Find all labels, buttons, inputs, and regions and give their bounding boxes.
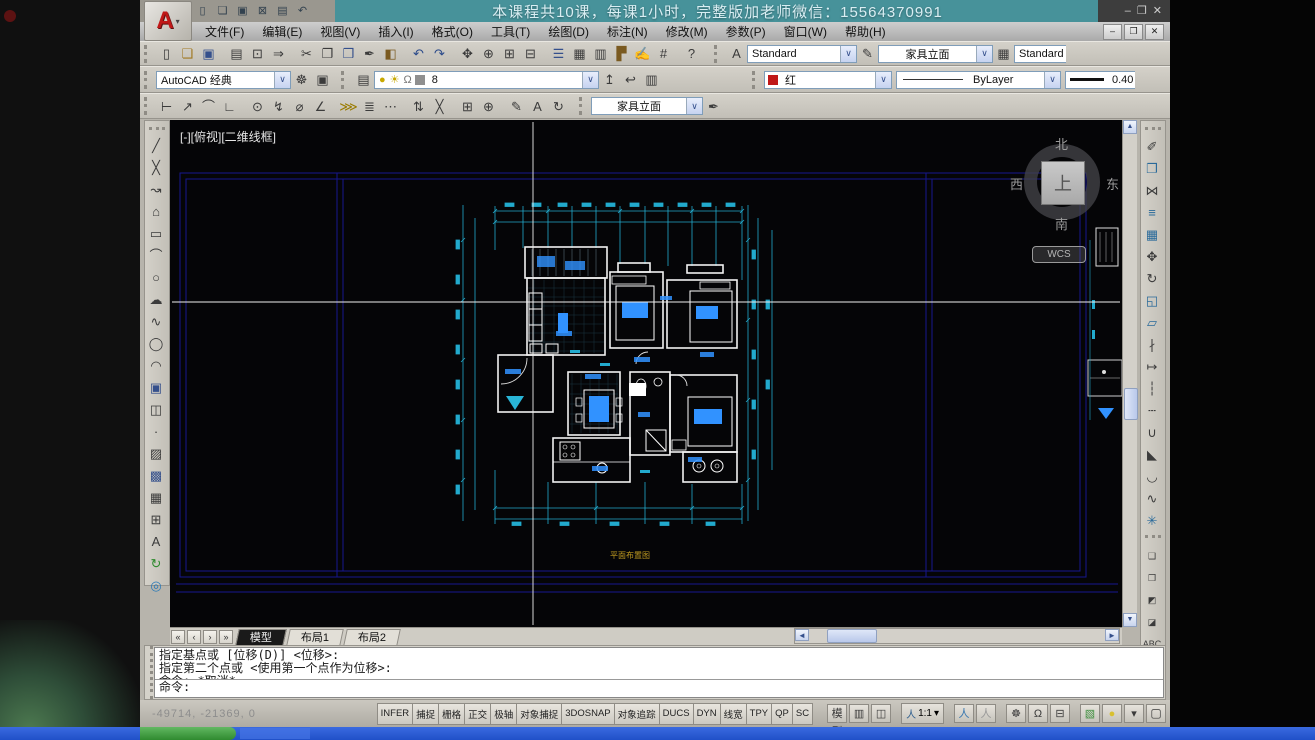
combo-arrow-icon: ∨ (274, 72, 290, 88)
annotation-scale-value: 1:1 (918, 708, 932, 719)
dim-center-mark-icon[interactable]: ⊕ (478, 96, 499, 117)
toggle-lineweight[interactable]: 线宽 (720, 703, 746, 725)
viewcube-east[interactable]: 东 (1106, 174, 1119, 193)
toolbar-grip[interactable] (579, 97, 587, 115)
dim-angular-icon[interactable]: ∠ (310, 96, 331, 117)
lineweight-sample (1070, 78, 1104, 81)
draw-toolbar: ╱╳↝⌂▭⌒○☁∿◯◠▣◫·▨▩▦⊞A↻◎ (144, 120, 170, 586)
annotation-person-icon: 人 (906, 706, 916, 721)
plot-preview-icon[interactable]: ⊡ (247, 43, 268, 64)
annotation-visibility-icon[interactable]: 人 (954, 704, 974, 723)
circle-icon[interactable]: ○ (145, 266, 167, 288)
menu-bar: 文件(F)编辑(E)视图(V)插入(I)格式(O)工具(T)绘图(D)标注(N)… (140, 22, 1170, 41)
workspace-settings-icon[interactable]: ☸ (291, 69, 312, 90)
toggle-osnap[interactable]: 对象捕捉 (516, 703, 561, 725)
model-space-button[interactable]: 模型 (827, 704, 847, 723)
vertical-scroll-thumb[interactable] (1124, 388, 1138, 420)
paste-icon[interactable]: ❒ (338, 43, 359, 64)
rotate-icon[interactable]: ↻ (1141, 267, 1163, 289)
trim-icon[interactable]: ∤ (1141, 333, 1163, 355)
break-icon[interactable]: ┄ (1141, 399, 1163, 421)
combo-arrow-icon: ∨ (875, 72, 891, 88)
layer-on-icon: ● (379, 74, 386, 86)
point-icon[interactable]: · (145, 420, 167, 442)
make-block-icon[interactable]: ◫ (145, 398, 167, 420)
stretch-icon[interactable]: ▱ (1141, 311, 1163, 333)
region-icon[interactable]: ▦ (145, 486, 167, 508)
combo-arrow-icon: ∨ (1044, 72, 1060, 88)
workspace-select[interactable]: AutoCAD 经典 ∨ (156, 71, 291, 89)
dim-style-current-select[interactable]: 家具立面 ∨ (591, 97, 703, 115)
layer-name: 8 (428, 74, 582, 86)
toolbar-grip[interactable] (149, 127, 165, 130)
annotation-scale-button[interactable]: 人 1:1 ▾ (901, 703, 944, 724)
mtext-icon[interactable]: A (145, 530, 167, 552)
command-history-line: 指定第二个点或 <使用第一个点作为位移>: (159, 662, 1159, 675)
command-input[interactable]: 命令: (155, 680, 1163, 697)
wcs-dropdown: WCS (1032, 246, 1086, 263)
quick-view-layouts-icon[interactable]: ▥ (849, 704, 869, 723)
scroll-right-icon[interactable]: ► (1105, 629, 1119, 641)
close-icon[interactable]: ✕ (1153, 5, 1162, 17)
extend-icon[interactable]: ↦ (1141, 355, 1163, 377)
gradient-icon[interactable]: ▩ (145, 464, 167, 486)
qat-saveas-icon[interactable]: ⊠ (254, 3, 271, 19)
toggle-otrack[interactable]: 对象追踪 (614, 703, 659, 725)
help-icon[interactable]: ? (681, 43, 702, 64)
qat-undo-icon[interactable]: ↶ (294, 3, 311, 19)
layer-properties-manager-icon[interactable]: ▤ (353, 69, 374, 90)
markup-sets-icon[interactable]: ✍ (632, 43, 653, 64)
quickcalc-icon[interactable]: # (653, 43, 674, 64)
document-window-controls: – ❐ ✕ (1103, 24, 1164, 40)
autocad-a-icon: A (156, 7, 173, 35)
scroll-down-icon[interactable]: ▼ (1123, 613, 1137, 627)
zoom-previous-icon[interactable]: ⊟ (520, 43, 541, 64)
qat-plot-icon[interactable]: ▤ (274, 3, 291, 19)
screen: A ▾ ▯❏▣⊠▤↶ 本课程共10课，每课1小时，完整版加老师微信：155643… (0, 0, 1315, 740)
combo-arrow-icon: ∨ (976, 46, 992, 62)
vertical-scrollbar[interactable]: ▲ ▼ (1122, 120, 1137, 627)
autocad-window: A ▾ ▯❏▣⊠▤↶ 本课程共10课，每课1小时，完整版加老师微信：155643… (140, 0, 1170, 727)
layers-properties-toolbar: AutoCAD 经典 ∨ ☸ ▣ ▤ ● ☀ Ω 8 ∨ ↥ ↩ ▥ (140, 66, 1170, 93)
course-ad-banner: 本课程共10课，每课1小时，完整版加老师微信：15564370991 (335, 0, 1100, 22)
scroll-up-icon[interactable]: ▲ (1123, 120, 1137, 134)
new-icon[interactable]: ▯ (156, 43, 177, 64)
toolbar-grip[interactable] (144, 97, 152, 115)
chamfer-icon[interactable]: ◣ (1141, 443, 1163, 465)
toolbar-grip[interactable] (144, 45, 152, 63)
ellipse-arc-icon[interactable]: ◠ (145, 354, 167, 376)
ellipse-icon[interactable]: ◯ (145, 332, 167, 354)
command-window: 指定基点或 [位移(D)] <位移>:指定第二个点或 <使用第一个点作为位移>:… (144, 645, 1166, 700)
table-style-select[interactable]: Standard (1014, 45, 1066, 63)
tab-last-button[interactable]: » (219, 630, 233, 644)
viewcube-top-face[interactable]: 上 (1041, 161, 1085, 205)
text-style-select[interactable]: Standard ∨ (747, 45, 857, 63)
move-icon[interactable]: ✥ (1141, 245, 1163, 267)
layer-color-swatch (415, 75, 425, 85)
performance-icon[interactable]: ▧ (1080, 704, 1100, 723)
fillet-icon[interactable]: ◡ (1141, 465, 1163, 487)
copy-icon[interactable]: ❐ (317, 43, 338, 64)
menu-tools[interactable]: 工具(T) (482, 21, 539, 42)
menu-help[interactable]: 帮助(H) (836, 21, 895, 42)
match-properties-icon[interactable]: ✒ (359, 43, 380, 64)
autocad-logo[interactable]: A ▾ (144, 1, 192, 41)
scroll-left-icon[interactable]: ◄ (795, 629, 809, 641)
restore-icon[interactable]: ❐ (1137, 5, 1147, 17)
layer-states-icon[interactable]: ▥ (641, 69, 662, 90)
copy-object-icon[interactable]: ❐ (1141, 157, 1163, 179)
dim-continue-icon[interactable]: ⋯ (380, 96, 401, 117)
tool-palettes-icon[interactable]: ▥ (590, 43, 611, 64)
desktop-glow (0, 620, 140, 740)
offset-icon[interactable]: ≡ (1141, 201, 1163, 223)
spline-icon[interactable]: ∿ (145, 310, 167, 332)
line-icon[interactable]: ╱ (145, 134, 167, 156)
toggle-infer[interactable]: INFER (377, 703, 413, 725)
scale-dropdown-icon: ▾ (934, 708, 939, 719)
block-editor-icon[interactable]: ◧ (380, 43, 401, 64)
toggle-polar[interactable]: 极轴 (490, 703, 516, 725)
save-icon[interactable]: ▣ (198, 43, 219, 64)
menu-file[interactable]: 文件(F) (196, 21, 253, 42)
dim-tolerance-icon[interactable]: ⊞ (457, 96, 478, 117)
arc-icon[interactable]: ⌒ (145, 244, 167, 266)
lightbulb-icon[interactable]: ● (1102, 704, 1122, 723)
doc-minimize-icon[interactable]: – (1103, 24, 1122, 40)
donut-icon[interactable]: ◎ (145, 574, 167, 596)
layer-select[interactable]: ● ☀ Ω 8 ∨ (374, 71, 599, 89)
doc-close-icon[interactable]: ✕ (1145, 24, 1164, 40)
viewcube-west[interactable]: 西 (1010, 174, 1023, 193)
annotation-autoscale-icon[interactable]: 人 (976, 704, 996, 723)
dim-jogged-icon[interactable]: ↯ (268, 96, 289, 117)
dim-text-edit-icon[interactable]: A (527, 96, 548, 117)
send-to-back-icon[interactable]: ❒ (1141, 565, 1163, 587)
desktop-right (1170, 0, 1315, 740)
qat-new-icon[interactable]: ▯ (194, 3, 211, 19)
color-select[interactable]: 红 ∨ (764, 71, 892, 89)
polyline-icon[interactable]: ↝ (145, 178, 167, 200)
join-icon[interactable]: ∪ (1141, 421, 1163, 443)
menu-modify[interactable]: 修改(M) (657, 21, 717, 42)
logo-dropdown-icon: ▾ (176, 17, 180, 26)
menu-parametric[interactable]: 参数(P) (717, 21, 775, 42)
menu-format[interactable]: 格式(O) (423, 21, 482, 42)
toggle-ducs[interactable]: DUCS (659, 703, 693, 725)
break-at-point-icon[interactable]: ┆ (1141, 377, 1163, 399)
combo-arrow-icon: ∨ (686, 98, 702, 114)
quick-launch-area[interactable] (240, 728, 310, 739)
table-icon[interactable]: ⊞ (145, 508, 167, 530)
dim-quick-icon[interactable]: ⋙ (338, 96, 359, 117)
bring-above-icon[interactable]: ◩ (1141, 587, 1163, 609)
toolbar-grip[interactable] (341, 71, 349, 89)
dim-ordinate-icon[interactable]: ∟ (219, 96, 240, 117)
modify-toolbar: ✐❐⋈≡▦✥↻◱▱∤↦┆┄∪◣◡∿✳ ❑❒◩◪ABC (1140, 120, 1166, 654)
bring-to-front-icon[interactable]: ❑ (1141, 543, 1163, 565)
command-window-grip[interactable] (145, 646, 153, 699)
dim-edit-icon[interactable]: ✎ (506, 96, 527, 117)
command-history[interactable]: 指定基点或 [位移(D)] <位移>:指定第二个点或 <使用第一个点作为位移>:… (155, 648, 1163, 680)
dim-style-select[interactable]: 家具立面 ∨ (878, 45, 993, 63)
horizontal-scrollbar[interactable]: ◄ ► (794, 628, 1120, 644)
dim-radius-icon[interactable]: ⊙ (247, 96, 268, 117)
construction-line-icon[interactable]: ╳ (145, 156, 167, 178)
menu-edit[interactable]: 编辑(E) (253, 21, 311, 42)
coordinates-readout: -49714, -21369, 0 (152, 708, 337, 720)
linetype-select[interactable]: ByLayer ∨ (896, 71, 1061, 89)
properties-palette-icon[interactable]: ☰ (548, 43, 569, 64)
viewport-controls[interactable]: [-][俯视][二维线框] (180, 128, 276, 145)
array-icon[interactable]: ▦ (1141, 223, 1163, 245)
desktop-icon-fragment (4, 10, 16, 22)
standard-toolbar: ▯❏▣▤⊡⇒✂❐❒✒◧↶↷✥⊕⊞⊟☰▦▥▛✍#? A Standard ∨ ✎ … (140, 41, 1170, 66)
toolbar-grip[interactable] (752, 71, 760, 89)
viewcube-north[interactable]: 北 (1055, 134, 1068, 153)
plot-icon[interactable]: ▤ (226, 43, 247, 64)
insert-block-icon[interactable]: ▣ (145, 376, 167, 398)
menu-dimension[interactable]: 标注(N) (598, 21, 657, 42)
viewcube-south[interactable]: 南 (1055, 214, 1068, 233)
clean-screen-icon[interactable]: ▢ (1146, 704, 1166, 723)
mirror-icon[interactable]: ⋈ (1141, 179, 1163, 201)
update-block-icon[interactable]: ↻ (145, 552, 167, 574)
layer-freeze-icon: ☀ (390, 73, 400, 86)
doc-restore-icon[interactable]: ❐ (1124, 24, 1143, 40)
horizontal-scroll-thumb[interactable] (827, 629, 877, 643)
qat-open-icon[interactable]: ❏ (214, 3, 231, 19)
redo-icon[interactable]: ↷ (429, 43, 450, 64)
quick-view-drawings-icon[interactable]: ◫ (871, 704, 891, 723)
status-menu-icon[interactable]: ⊟ (1050, 704, 1070, 723)
toggle-sc[interactable]: SC (792, 703, 813, 725)
dim-space-icon[interactable]: ⇅ (408, 96, 429, 117)
combo-arrow-icon: ∨ (582, 72, 598, 88)
tab-first-button[interactable]: « (171, 630, 185, 644)
menu-window[interactable]: 窗口(W) (775, 21, 836, 42)
tab-prev-button[interactable]: ‹ (187, 630, 201, 644)
quick-access-toolbar: ▯❏▣⊠▤↶ (194, 2, 311, 20)
toolbar-grip[interactable] (714, 45, 722, 63)
toggle-qp[interactable]: QP (771, 703, 792, 725)
menu-view[interactable]: 视图(V) (311, 21, 369, 42)
toggle-ortho[interactable]: 正交 (464, 703, 490, 725)
pan-icon[interactable]: ✥ (457, 43, 478, 64)
dim-break-icon[interactable]: ╳ (429, 96, 450, 117)
qat-save-icon[interactable]: ▣ (234, 3, 251, 19)
zoom-realtime-icon[interactable]: ⊕ (478, 43, 499, 64)
color-swatch (768, 75, 778, 85)
layer-lock-icon: Ω (404, 74, 412, 86)
blend-curves-icon[interactable]: ∿ (1141, 487, 1163, 509)
text-style-icon[interactable]: A (726, 43, 747, 64)
sheet-set-manager-icon[interactable]: ▛ (611, 43, 632, 64)
dim-update-icon[interactable]: ↻ (548, 96, 569, 117)
zoom-window-icon[interactable]: ⊞ (499, 43, 520, 64)
send-under-icon[interactable]: ◪ (1141, 609, 1163, 631)
dim-style-icon[interactable]: ✎ (857, 43, 878, 64)
undo-icon[interactable]: ↶ (408, 43, 429, 64)
tab-layout1[interactable]: 布局1 (286, 629, 344, 646)
publish-icon[interactable]: ⇒ (268, 43, 289, 64)
cut-icon[interactable]: ✂ (296, 43, 317, 64)
plan-title-text: 平面布置图 (610, 550, 650, 561)
lineweight-select[interactable]: 0.40 (1065, 71, 1135, 89)
table-style-icon[interactable]: ▦ (993, 43, 1014, 64)
dim-diameter-icon[interactable]: ⌀ (289, 96, 310, 117)
revision-cloud-icon[interactable]: ☁ (145, 288, 167, 310)
dim-linear-icon[interactable]: ⊢ (156, 96, 177, 117)
viewcube[interactable]: 北 南 西 东 上 (1018, 138, 1106, 226)
toggle-3dosnap[interactable]: 3DOSNAP (561, 703, 613, 725)
scale-icon[interactable]: ◱ (1141, 289, 1163, 311)
toggle-snap[interactable]: 捕捉 (412, 703, 438, 725)
dim-baseline-icon[interactable]: ≣ (359, 96, 380, 117)
tab-layout2[interactable]: 布局2 (343, 629, 401, 646)
dimension-toolbar: ⊢↗⌒∟⊙↯⌀∠⋙≣⋯⇅╳⊞⊕✎A↻ 家具立面 ∨ ✒ (140, 93, 1170, 119)
rectangle-icon[interactable]: ▭ (145, 222, 167, 244)
open-icon[interactable]: ❏ (177, 43, 198, 64)
linetype-sample (903, 79, 963, 80)
status-dropdown-icon[interactable]: ▾ (1124, 704, 1144, 723)
hatch-icon[interactable]: ▨ (145, 442, 167, 464)
combo-arrow-icon: ∨ (840, 46, 856, 62)
layer-previous-icon[interactable]: ↩ (620, 69, 641, 90)
dim-aligned-icon[interactable]: ↗ (177, 96, 198, 117)
designcenter-icon[interactable]: ▦ (569, 43, 590, 64)
toolbar-grip[interactable] (1145, 127, 1161, 131)
polygon-icon[interactable]: ⌂ (145, 200, 167, 222)
window-controls: – ❐ ✕ (1098, 0, 1170, 22)
toolbar-grip[interactable] (144, 71, 152, 89)
layout-tab-bar: «‹›» 模型布局1布局2 ◄ ► (170, 627, 1122, 646)
dim-style-manager-icon[interactable]: ✒ (703, 96, 724, 117)
tab-model[interactable]: 模型 (235, 629, 287, 646)
start-button[interactable] (140, 727, 236, 740)
menu-insert[interactable]: 插入(I) (369, 21, 422, 42)
toolbar-grip[interactable] (1145, 535, 1161, 539)
toggle-grid[interactable]: 栅格 (438, 703, 464, 725)
workspace-switch-icon[interactable]: ☸ (1006, 704, 1026, 723)
make-object-layer-current-icon[interactable]: ↥ (599, 69, 620, 90)
minimize-icon[interactable]: – (1125, 5, 1131, 17)
save-workspace-icon[interactable]: ▣ (312, 69, 333, 90)
toggle-dyn[interactable]: DYN (693, 703, 720, 725)
dim-arc-length-icon[interactable]: ⌒ (198, 96, 219, 117)
tab-next-button[interactable]: › (203, 630, 217, 644)
erase-icon[interactable]: ✐ (1141, 135, 1163, 157)
explode-icon[interactable]: ✳ (1141, 509, 1163, 531)
status-bar: -49714, -21369, 0 INFER捕捉栅格正交极轴对象捕捉3DOSN… (140, 700, 1170, 727)
toggle-tpy[interactable]: TPY (746, 703, 771, 725)
menu-draw[interactable]: 绘图(D) (539, 21, 598, 42)
toolbar-lock-icon[interactable]: Ω (1028, 704, 1048, 723)
drawing-canvas[interactable]: [-][俯视][二维线框] (170, 120, 1122, 627)
